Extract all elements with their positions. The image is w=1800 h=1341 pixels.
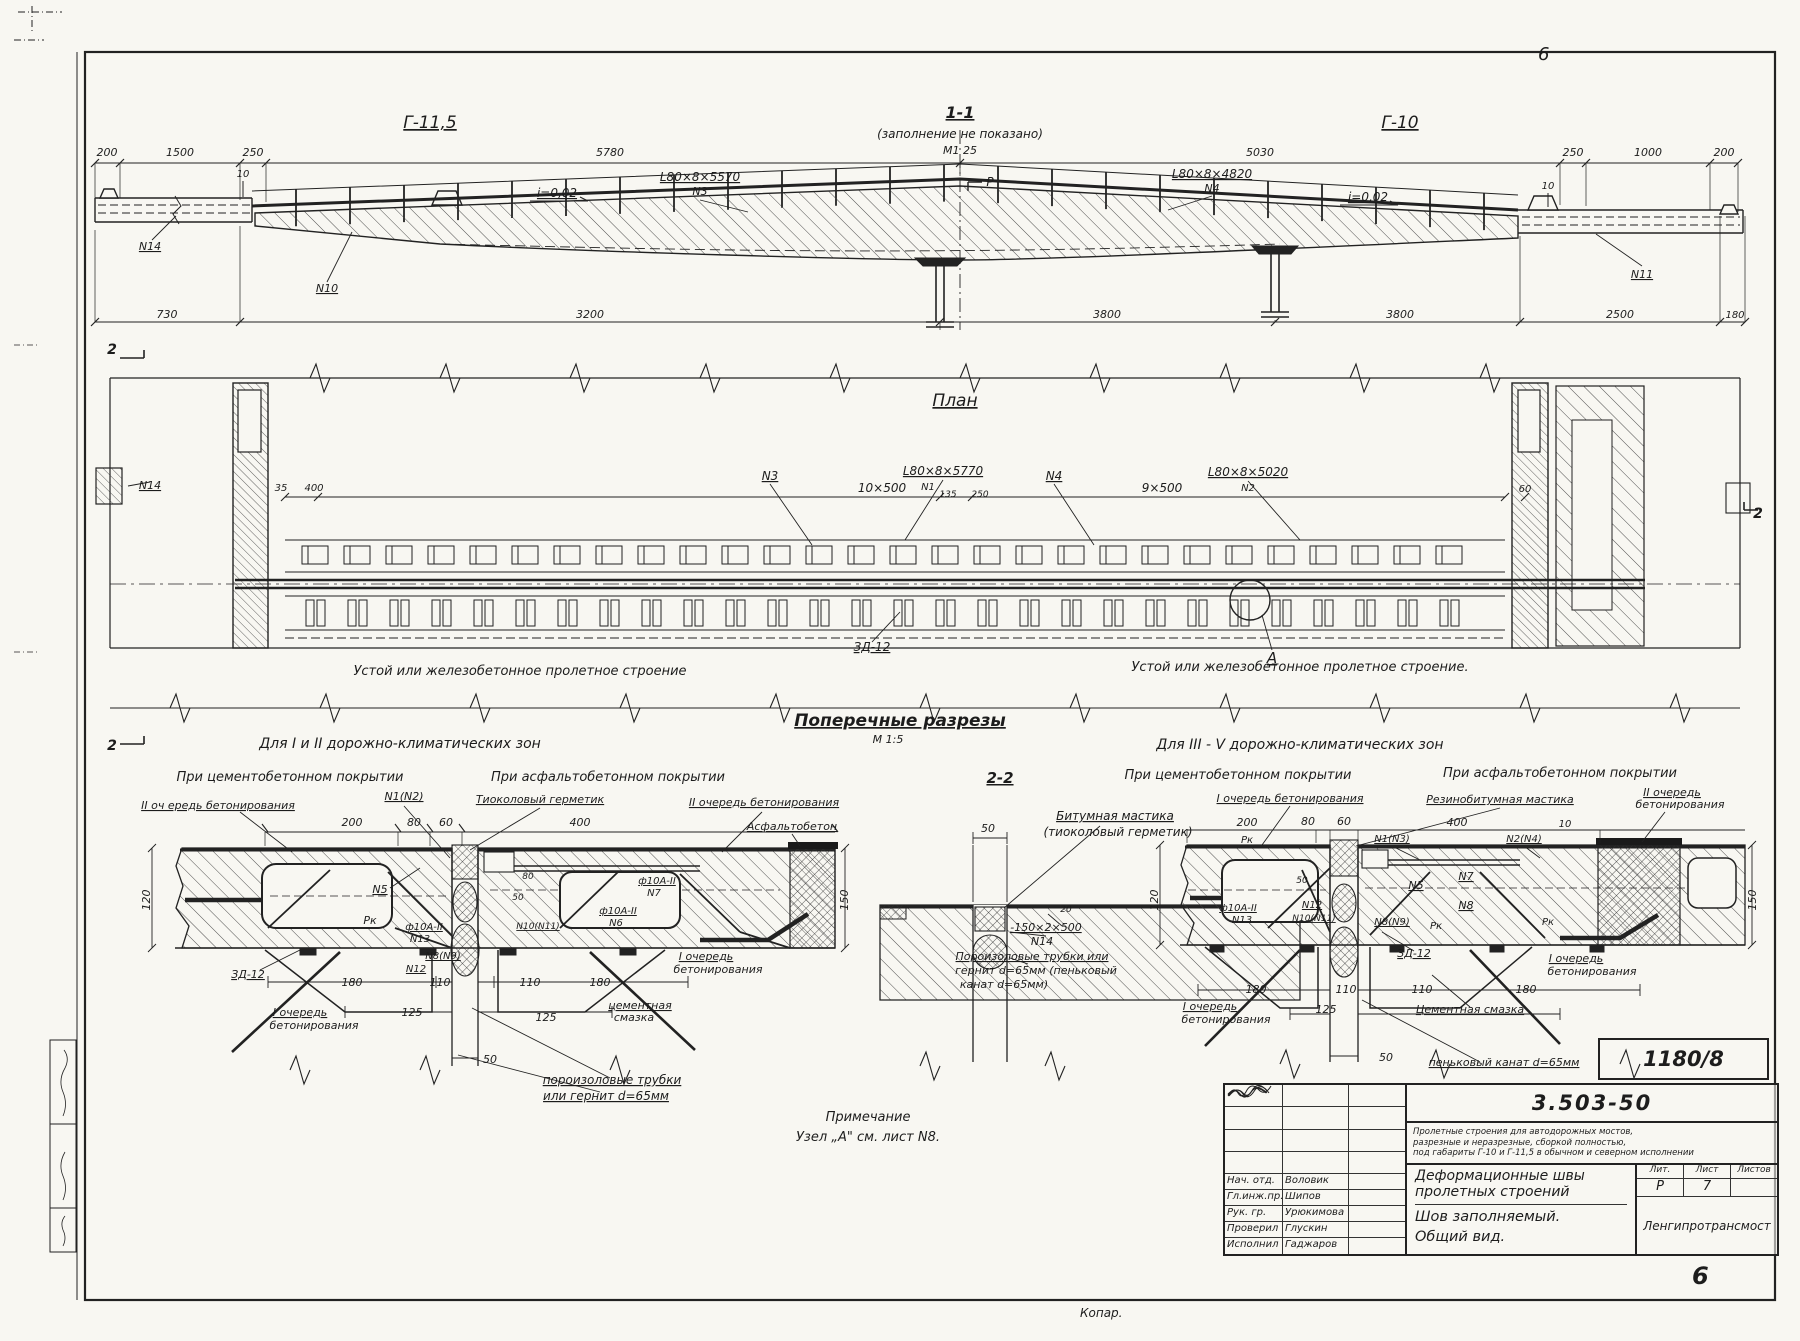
drawing-label: 200	[342, 816, 363, 829]
elevation-view: Г-11,51-1(заполнение не показано)М1 25Г-…	[91, 103, 1749, 330]
drawing-label: N8(N9)	[425, 951, 461, 962]
drawing-label: 180	[342, 976, 363, 989]
doc-number-stamp: 1180/8	[1598, 1038, 1769, 1080]
sig-row: ПроверилГлускин	[1225, 1222, 1405, 1238]
drawing-label: I очередь	[679, 950, 734, 963]
organization-name: Ленгипротрансмост	[1637, 1197, 1777, 1254]
drawing-label: М1 25	[943, 144, 977, 157]
sig-row: Рук. гр.Урюкимова	[1225, 1206, 1405, 1222]
title-block-signatures: Нач. отд.Воловик Гл.инж.пр.Шипов Рук. гр…	[1225, 1085, 1407, 1254]
drawing-label: 180	[1246, 983, 1267, 996]
drawing-label: L80×8×5020	[1208, 465, 1289, 479]
drawing-label: N12	[406, 964, 426, 975]
drawing-label: N13	[1232, 915, 1252, 926]
drawing-label: 80	[522, 872, 534, 882]
drawing-label: 120	[1148, 890, 1161, 911]
drawing-label: N14	[139, 240, 161, 253]
drawing-sheet: Г-11,51-1(заполнение не показано)М1 25Г-…	[0, 0, 1800, 1341]
plan-view: План222N1435400N310×500L80×8×5770N113525…	[96, 342, 1763, 754]
drawing-label: 10	[1559, 819, 1572, 830]
series-description: Пролетные строения для автодорожных мост…	[1407, 1123, 1777, 1165]
drawing-label: 125	[402, 1006, 423, 1019]
lit-list-listov-header: Лит.ЛистЛистов	[1637, 1165, 1777, 1179]
drawing-label: Р	[986, 175, 994, 189]
title-block: Нач. отд.Воловик Гл.инж.пр.Шипов Рук. гр…	[1223, 1083, 1779, 1256]
drawing-label: 110	[430, 976, 451, 989]
drawing-label: (заполнение не показано)	[877, 127, 1043, 141]
drawing-label: бетонирования	[270, 1019, 359, 1032]
drawing-label: 3200	[576, 308, 604, 321]
drawing-label: N11	[1631, 268, 1653, 281]
drawing-label: Поперечные разрезы	[794, 711, 1006, 731]
drawing-label: бетонирования	[674, 963, 763, 976]
signature-scribble	[1349, 1174, 1405, 1189]
drawing-label: 125	[536, 1011, 557, 1024]
drawing-label: Для III - V дорожно-климатических зон	[1155, 737, 1443, 753]
sig-row: Нач. отд.Воловик	[1225, 1174, 1405, 1190]
drawing-label: Битумная мастика	[1056, 809, 1174, 823]
page-number: 6	[1692, 1262, 1709, 1290]
sig-row: ИсполнилГаджаров	[1225, 1238, 1405, 1254]
drawing-label: 2	[107, 738, 117, 754]
drawing-label: Узел „А" см. лист N8.	[796, 1130, 940, 1145]
drawing-label: N4	[1204, 182, 1219, 195]
drawing-label: Г-10	[1381, 113, 1418, 133]
drawing-label: (тиоколовый герметик)	[1043, 825, 1192, 839]
drawing-label: I очередь	[1549, 952, 1604, 965]
drawing-label: i=0,02	[537, 186, 577, 200]
margin-stamp-scribble	[61, 1050, 67, 1246]
lit-list-listov-values: Р7	[1637, 1179, 1777, 1197]
drawing-label: L80×8×4820	[1172, 167, 1253, 181]
drawing-label: Г-11,5	[403, 113, 456, 133]
drawing-label: 180	[1725, 310, 1744, 321]
drawing-label: II очередь бетонирования	[689, 796, 840, 809]
drawing-label: 120	[140, 890, 153, 911]
drawing-label: Рк	[1430, 921, 1442, 932]
drawing-label: N3	[762, 469, 779, 483]
drawing-label: 400	[1447, 816, 1468, 829]
drawing-label: 1-1	[946, 103, 975, 122]
drawing-label: бетонирования	[1182, 1013, 1271, 1026]
copier-note: Копар.	[1080, 1306, 1123, 1320]
drawing-label: N7	[1458, 870, 1473, 883]
drawing-label: канат d=65мм)	[960, 978, 1048, 991]
drawing-label: смазка	[614, 1011, 655, 1024]
drawing-label: ЗД-12	[231, 968, 265, 981]
sig-row: Гл.инж.пр.Шипов	[1225, 1190, 1405, 1206]
signature-scribble	[1349, 1206, 1405, 1221]
drawing-label: N13	[410, 934, 430, 945]
drawing-label: Резинобитумная мастика	[1426, 793, 1574, 806]
drawing-label: 150	[838, 890, 851, 911]
drawing-label: 80	[1301, 815, 1315, 828]
drawing-label: План	[932, 391, 977, 411]
drawing-label: N8(N9)	[1374, 917, 1410, 928]
drawing-label: При цементобетонном покрытии	[1124, 768, 1351, 783]
drawing-label: 3800	[1093, 308, 1121, 321]
drawing-label: 60	[1519, 484, 1532, 495]
drawing-label: 2-2	[986, 769, 1013, 787]
drawing-label: 5780	[596, 146, 624, 159]
drawing-label: 50	[483, 1053, 497, 1066]
drawing-label: N4	[1046, 469, 1063, 483]
drawing-label: Цементная смазка	[1416, 1003, 1525, 1016]
drawing-label: 60	[439, 816, 453, 829]
drawing-label: Асфальтобетон	[746, 820, 837, 833]
drawing-label: При асфальтобетонном покрытии	[1443, 766, 1677, 781]
drawing-label: 50	[981, 822, 995, 835]
drawing-label: 180	[590, 976, 611, 989]
signature-scribble	[1349, 1238, 1405, 1254]
drawing-label: 110	[1412, 983, 1433, 996]
drawing-label: N2(N4)	[1506, 834, 1542, 845]
drawing-label: Тиоколовый герметик	[476, 793, 605, 806]
drawing-label: Устой или железобетонное пролетное строе…	[1131, 660, 1468, 675]
drawing-label: ф10А-II	[638, 876, 676, 887]
drawing-label: II оч ередь бетонирования	[141, 799, 295, 812]
drawing-label: Рк	[363, 914, 377, 927]
drawing-label: Устой или железобетонное пролетное строе…	[353, 664, 686, 679]
drawing-label: 2500	[1606, 308, 1634, 321]
drawing-label: I очередь	[273, 1006, 328, 1019]
drawing-label: N5	[1408, 879, 1423, 892]
drawing-label: 1500	[166, 146, 194, 159]
drawing-label: 110	[520, 976, 541, 989]
drawing-label: 110	[1336, 983, 1357, 996]
drawing-label: N7	[647, 888, 661, 899]
drawing-label: При цементобетонном покрытии	[176, 770, 403, 785]
drawing-label: 10	[237, 169, 250, 180]
signature-scribble	[1349, 1222, 1405, 1237]
drawing-label: N1	[921, 482, 935, 493]
drawing-label: 250	[1563, 146, 1584, 159]
drawing-label: ф10А-II	[599, 906, 637, 917]
drawing-label: 250	[971, 490, 988, 500]
drawing-label: 10×500	[858, 481, 907, 495]
drawing-label: 10	[1542, 181, 1555, 192]
drawing-label: 3800	[1386, 308, 1414, 321]
series-number: 3.503-50	[1407, 1085, 1777, 1123]
drawing-label: гернит d=65мм (пеньковый	[955, 964, 1117, 977]
drawing-label: -150×2×500	[1010, 921, 1081, 934]
drawing-label: N14	[139, 479, 161, 492]
drawing-label: 150	[1746, 890, 1759, 911]
drawing-label: 50	[1296, 876, 1308, 886]
drawing-label: N1(N2)	[384, 790, 423, 803]
sheet-title: Деформационные швыпролетных строений Шов…	[1407, 1165, 1637, 1254]
drawing-label: L80×8×5770	[903, 464, 984, 478]
drawing-label: N2	[1241, 483, 1255, 494]
drawing-label: бетонирования	[1636, 798, 1725, 811]
drawing-label: Рк	[1241, 835, 1253, 846]
drawing-label: 400	[570, 816, 591, 829]
drawing-label: При асфальтобетонном покрытии	[491, 770, 725, 785]
drawing-label: бетонирования	[1548, 965, 1637, 978]
drawing-label: 400	[304, 483, 323, 494]
drawing-label: 1000	[1634, 146, 1662, 159]
drawing-label: 35	[275, 483, 288, 494]
drawing-label: 50	[1379, 1051, 1393, 1064]
drawing-label: 135	[939, 490, 956, 500]
drawing-label: i=0,02	[1348, 190, 1388, 204]
drawing-label: 180	[1516, 983, 1537, 996]
drawing-label: I очередь	[1183, 1000, 1238, 1013]
drawing-label: N1(N3)	[1374, 834, 1410, 845]
drawing-label: N6	[609, 918, 623, 929]
drawing-label: N5	[372, 883, 387, 896]
drawing-label: N10(N11)	[1292, 914, 1335, 924]
drawing-label: или гернит d=65мм	[543, 1089, 669, 1103]
drawing-label: пеньковый канат d=65мм	[1429, 1056, 1580, 1069]
drawing-label: 200	[1237, 816, 1258, 829]
drawing-label: 250	[243, 146, 264, 159]
signature-scribble	[1349, 1190, 1405, 1205]
drawing-label: Рк	[1542, 917, 1554, 928]
drawing-label: 2	[107, 342, 117, 358]
drawing-label: I очередь бетонирования	[1217, 792, 1364, 805]
drawing-label: 50	[512, 893, 524, 903]
drawing-label: N14	[1031, 935, 1053, 948]
drawing-label: Для I и II дорожно-климатических зон	[258, 736, 541, 752]
drawing-label: 730	[157, 308, 178, 321]
drawing-label: ф10А-II	[1219, 903, 1257, 914]
drawing-label: N3	[692, 185, 707, 198]
drawing-label: ф10А-II	[405, 922, 443, 933]
drawing-label: N10	[316, 282, 338, 295]
drawing-label: М 1:5	[873, 733, 904, 746]
drawing-label: 200	[1714, 146, 1735, 159]
drawing-label: пороизоловые трубки	[543, 1073, 682, 1087]
drawing-label: Примечание	[826, 1110, 911, 1125]
cross-sections: Поперечные разрезыМ 1:5Для I и II дорожн…	[140, 711, 1759, 1145]
drawing-label: N8	[1458, 899, 1473, 912]
drawing-label: ЗД-12	[1397, 947, 1431, 960]
corner-page-mark: 6	[1538, 44, 1549, 65]
drawing-label: 9×500	[1142, 481, 1183, 495]
drawing-label: 5030	[1246, 146, 1274, 159]
drawing-label: 125	[1316, 1003, 1337, 1016]
drawing-label: ЗД-12	[854, 640, 891, 654]
drawing-label: N10(N11)	[516, 922, 559, 932]
drawing-label: 20	[1060, 905, 1072, 915]
drawing-label: L80×8×5570	[660, 170, 741, 184]
drawing-label: N12	[1302, 900, 1322, 911]
drawing-label: 60	[1337, 815, 1351, 828]
drawing-label: Пороизоловые трубки или	[956, 950, 1109, 963]
drawing-label: 2	[1753, 506, 1763, 522]
drawing-label: 200	[97, 146, 118, 159]
drawing-label: 80	[407, 816, 421, 829]
